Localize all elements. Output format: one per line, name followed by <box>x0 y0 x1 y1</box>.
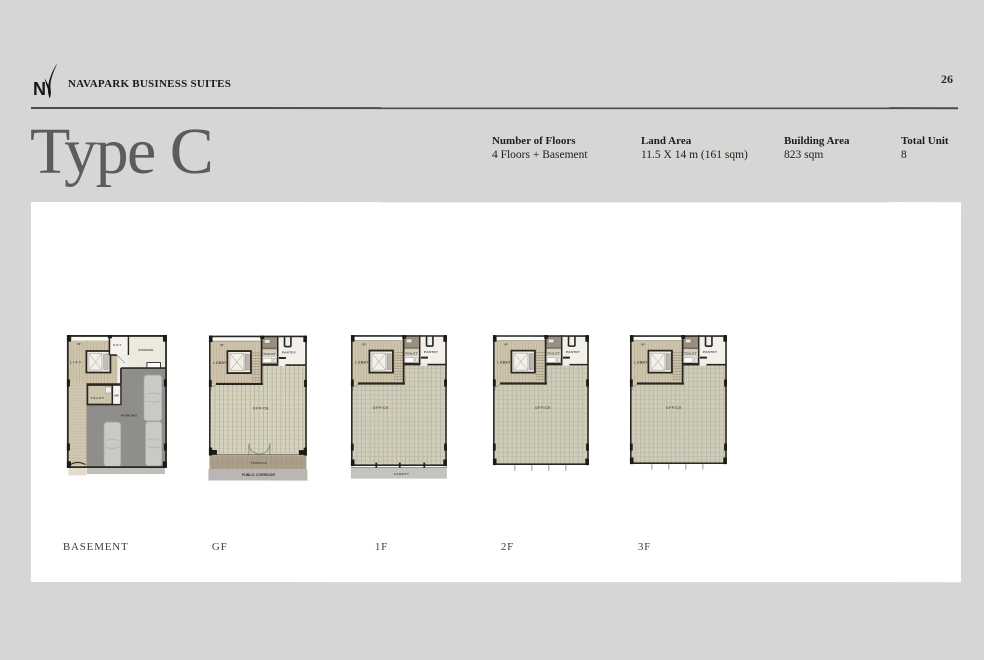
svg-text:TOILET: TOILET <box>405 351 418 355</box>
svg-text:OFFICE: OFFICE <box>373 406 389 410</box>
svg-text:TOILET: TOILET <box>547 351 560 355</box>
svg-text:LOBBY: LOBBY <box>355 360 369 364</box>
svg-text:STORAGE: STORAGE <box>138 348 153 352</box>
svg-text:PANTRY: PANTRY <box>703 350 718 354</box>
svg-text:TOILET: TOILET <box>90 396 104 400</box>
svg-text:KEY: KEY <box>113 343 121 347</box>
svg-text:U/W: U/W <box>114 394 120 398</box>
svg-text:UP: UP <box>77 342 81 346</box>
svg-text:PANTRY: PANTRY <box>424 350 439 354</box>
svg-text:CANOPY: CANOPY <box>394 472 409 476</box>
svg-text:UP: UP <box>220 343 224 347</box>
svg-text:PANTRY: PANTRY <box>282 350 297 354</box>
svg-text:UP: UP <box>504 343 508 347</box>
svg-text:LIFT: LIFT <box>70 361 81 365</box>
svg-text:UP: UP <box>362 343 366 347</box>
svg-text:LOBBY: LOBBY <box>497 360 511 364</box>
svg-text:TOILET: TOILET <box>684 351 697 355</box>
svg-text:PANTRY: PANTRY <box>566 350 581 354</box>
svg-text:OFFICE: OFFICE <box>666 406 682 410</box>
svg-text:PARKING: PARKING <box>121 414 138 418</box>
svg-text:UP: UP <box>641 343 645 347</box>
svg-text:LOBBY: LOBBY <box>634 360 648 364</box>
svg-text:LOBBY: LOBBY <box>213 361 227 365</box>
svg-text:OFFICE: OFFICE <box>253 407 269 411</box>
svg-text:OFFICE: OFFICE <box>535 406 551 410</box>
svg-text:TERRACE: TERRACE <box>251 461 267 465</box>
svg-text:PUBLIC CORRIDOR: PUBLIC CORRIDOR <box>242 473 276 477</box>
svg-text:TOILET: TOILET <box>263 352 276 356</box>
